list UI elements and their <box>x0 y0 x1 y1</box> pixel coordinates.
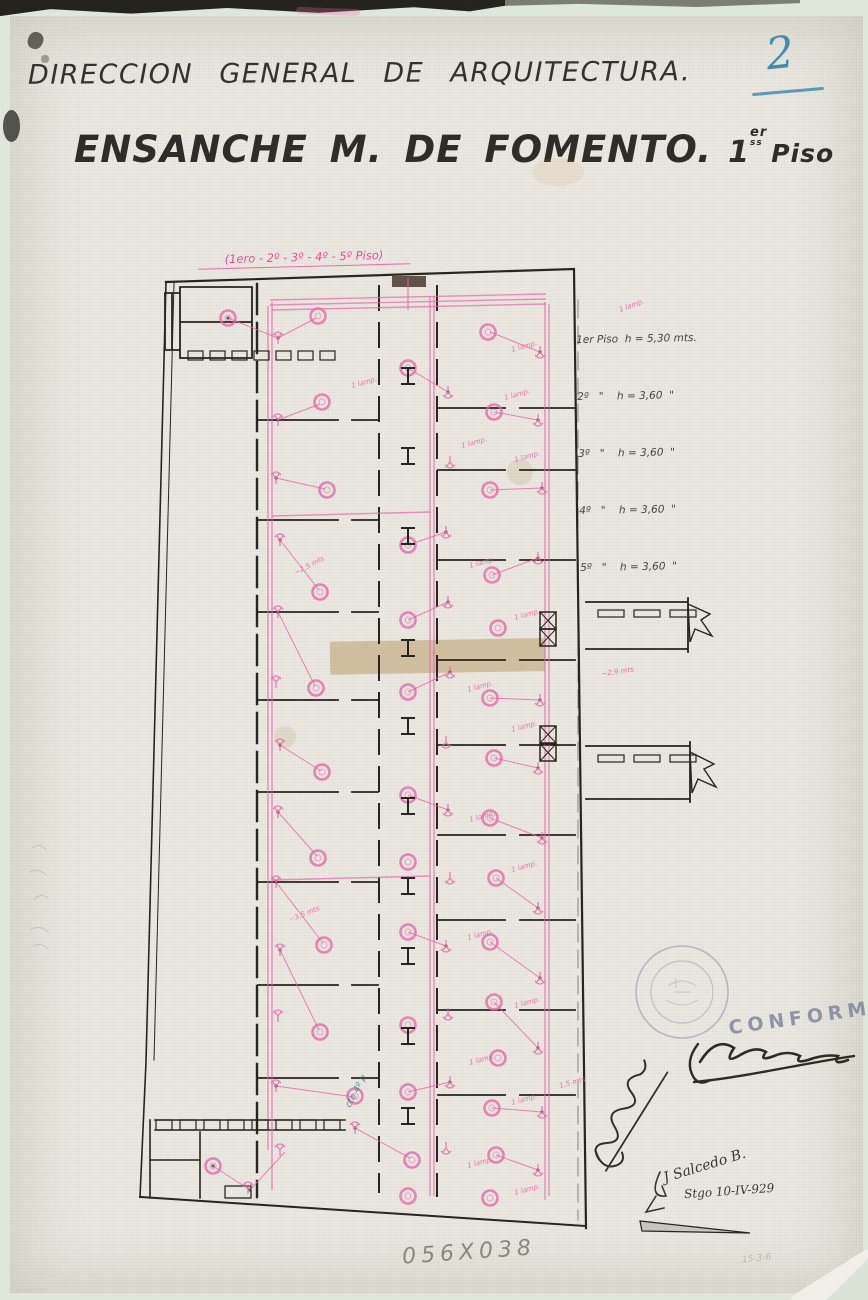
column-mark <box>401 1108 415 1124</box>
column-mark <box>401 528 415 544</box>
window-tick <box>156 1120 172 1130</box>
window-tick <box>252 1120 268 1130</box>
switch-symbol <box>443 804 453 816</box>
lamp-symbol <box>311 851 326 866</box>
wiring-label: 1 lamp. <box>466 1155 494 1170</box>
lamp-symbol <box>311 309 326 324</box>
structural-marks-layer <box>156 351 696 1130</box>
column-mark <box>401 948 415 964</box>
window-tick <box>228 1120 244 1130</box>
lamp-symbol <box>315 395 330 410</box>
wiring-label: 1 lamp. <box>466 927 494 942</box>
wiring-label: ~3,5 mts <box>288 904 321 924</box>
lamp-symbol <box>405 1153 420 1168</box>
switch-symbol <box>441 736 451 748</box>
window-tick <box>324 1120 340 1130</box>
floor-plan: 1 lamp.1 lamp.1 lamp.1 lamp.1 lamp.1 lam… <box>0 0 868 1300</box>
wiring-label: 1 lamp. <box>350 375 378 390</box>
wiring-label: 1 lamp. <box>460 435 488 450</box>
switch-symbol <box>445 456 455 468</box>
wiring-label: ~2,9 mts <box>601 665 635 677</box>
switch-symbol <box>445 1076 455 1088</box>
switch-symbol <box>533 552 543 564</box>
switch-symbol <box>445 872 455 884</box>
plan-walls <box>140 269 750 1233</box>
wiring-label: ~2,5 mts <box>293 554 326 576</box>
pencil-scribbles <box>30 845 48 949</box>
window-tick <box>298 351 313 360</box>
switch-symbol <box>443 596 453 608</box>
window-tick <box>598 610 624 617</box>
lamp-symbol <box>401 855 416 870</box>
wiring-label: 1 lamp. <box>510 1092 538 1107</box>
window-tick <box>276 351 291 360</box>
wiring-label: 1 lamp. <box>513 1182 541 1197</box>
switch-symbol <box>273 1010 283 1022</box>
wiring-label: 1 lamp. <box>468 1052 496 1067</box>
wiring-label: 1,5 mts <box>558 1075 586 1090</box>
switch-symbol <box>533 414 543 426</box>
switch-symbol <box>533 1164 543 1176</box>
wiring-label: 1 lamp. <box>513 607 541 622</box>
round-stamp <box>636 946 728 1038</box>
wiring-label: 1 lamp. <box>513 995 541 1010</box>
switch-symbol <box>535 972 545 984</box>
lamp-symbol <box>401 1189 416 1204</box>
window-tick <box>300 1120 316 1130</box>
window-tick <box>670 610 696 617</box>
service-entry <box>392 276 426 287</box>
diagonal-signature <box>582 1057 675 1175</box>
column-mark <box>401 718 415 734</box>
switch-symbol <box>350 1122 360 1134</box>
bridge-pennant <box>690 752 716 793</box>
lamp-symbol <box>317 938 332 953</box>
window-tick <box>180 1120 196 1130</box>
lamp-symbol <box>481 325 496 340</box>
wiring-label: 1 lamp. <box>618 297 646 314</box>
lamp-symbol <box>313 585 328 600</box>
approval-signature <box>690 1044 854 1083</box>
wiring-label: 1 lamp. <box>510 859 538 874</box>
window-tick <box>276 1120 292 1130</box>
wiring-label: 1 lamp. <box>503 387 531 402</box>
wiring-label: 1 lamp. <box>510 719 538 734</box>
lamp-symbol <box>483 1191 498 1206</box>
lamp-symbol <box>320 483 335 498</box>
switch-symbol <box>533 902 543 914</box>
switch-symbol <box>533 762 543 774</box>
column-mark <box>401 878 415 894</box>
switch-symbol <box>441 1142 451 1154</box>
switch-symbol <box>273 332 283 344</box>
window-tick <box>670 755 696 762</box>
window-tick <box>320 351 335 360</box>
switch-symbol <box>441 526 451 538</box>
window-tick <box>598 755 624 762</box>
switch-symbol <box>535 346 545 358</box>
window-tick <box>634 755 660 762</box>
switch-symbol <box>441 940 451 952</box>
lamp-symbol <box>491 621 506 636</box>
lamp-symbol <box>313 1025 328 1040</box>
column-mark <box>401 448 415 464</box>
lamp-symbol <box>315 765 330 780</box>
lamp-symbol <box>309 681 324 696</box>
bottom-wedge <box>640 1221 750 1233</box>
window-tick <box>634 610 660 617</box>
switch-symbol <box>443 386 453 398</box>
switch-symbol <box>275 944 285 956</box>
window-tick <box>204 1120 220 1130</box>
